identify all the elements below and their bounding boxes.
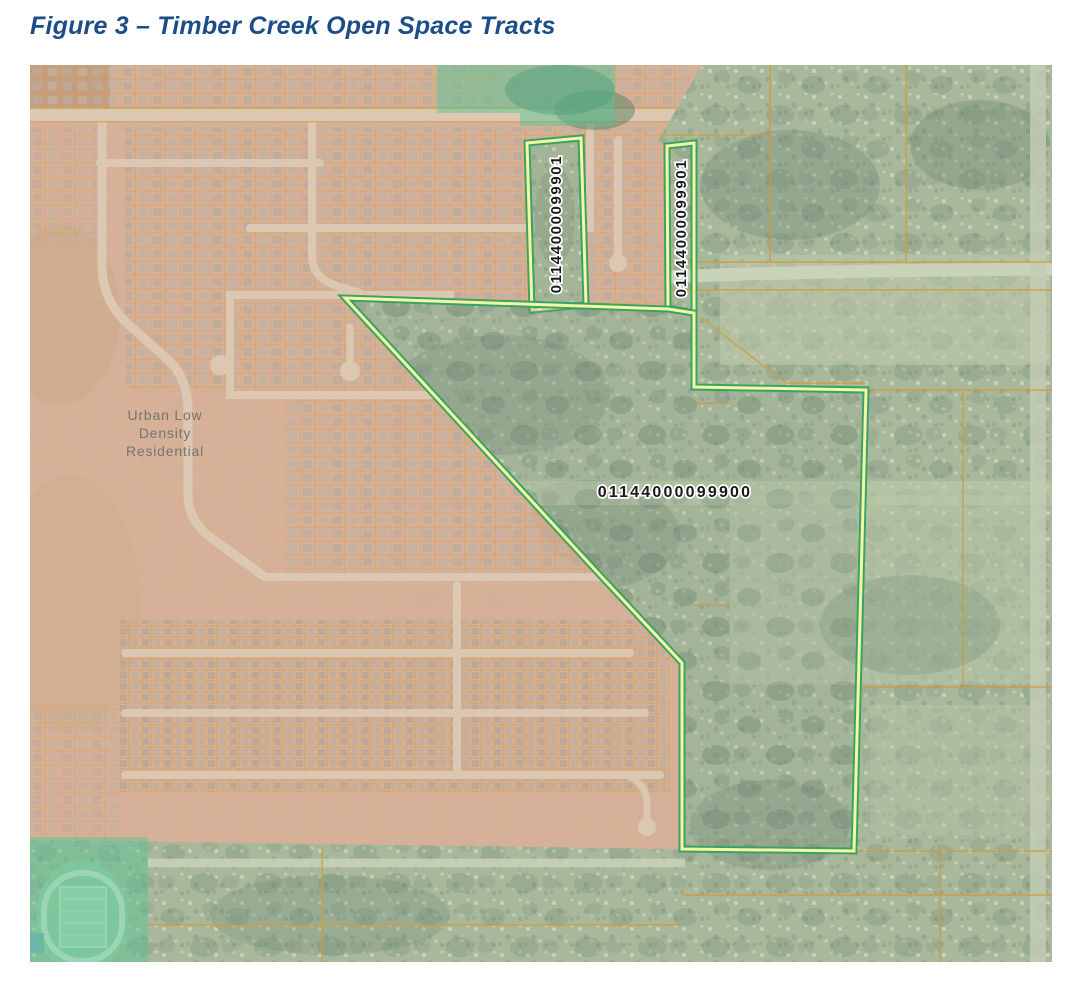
zoning-label-line2: Density [139, 425, 191, 441]
parcel-label-main-tract: 01144000099900 [598, 484, 753, 501]
open-space-highlight-bottom [30, 837, 148, 962]
zoning-label-line3: Residential [126, 443, 204, 459]
document-page: Figure 3 – Timber Creek Open Space Tract… [0, 0, 1078, 982]
map-figure: Urban Low Density Residential 0114400009… [30, 65, 1052, 962]
aerial-map: Urban Low Density Residential 0114400009… [30, 65, 1052, 962]
figure-title: Figure 3 – Timber Creek Open Space Tract… [30, 12, 1030, 41]
parcel-label-right-strip: 01144000099901 [673, 159, 690, 297]
zoning-label-line1: Urban Low [128, 407, 203, 423]
parcel-label-left-strip: 01144000099901 [548, 155, 565, 293]
